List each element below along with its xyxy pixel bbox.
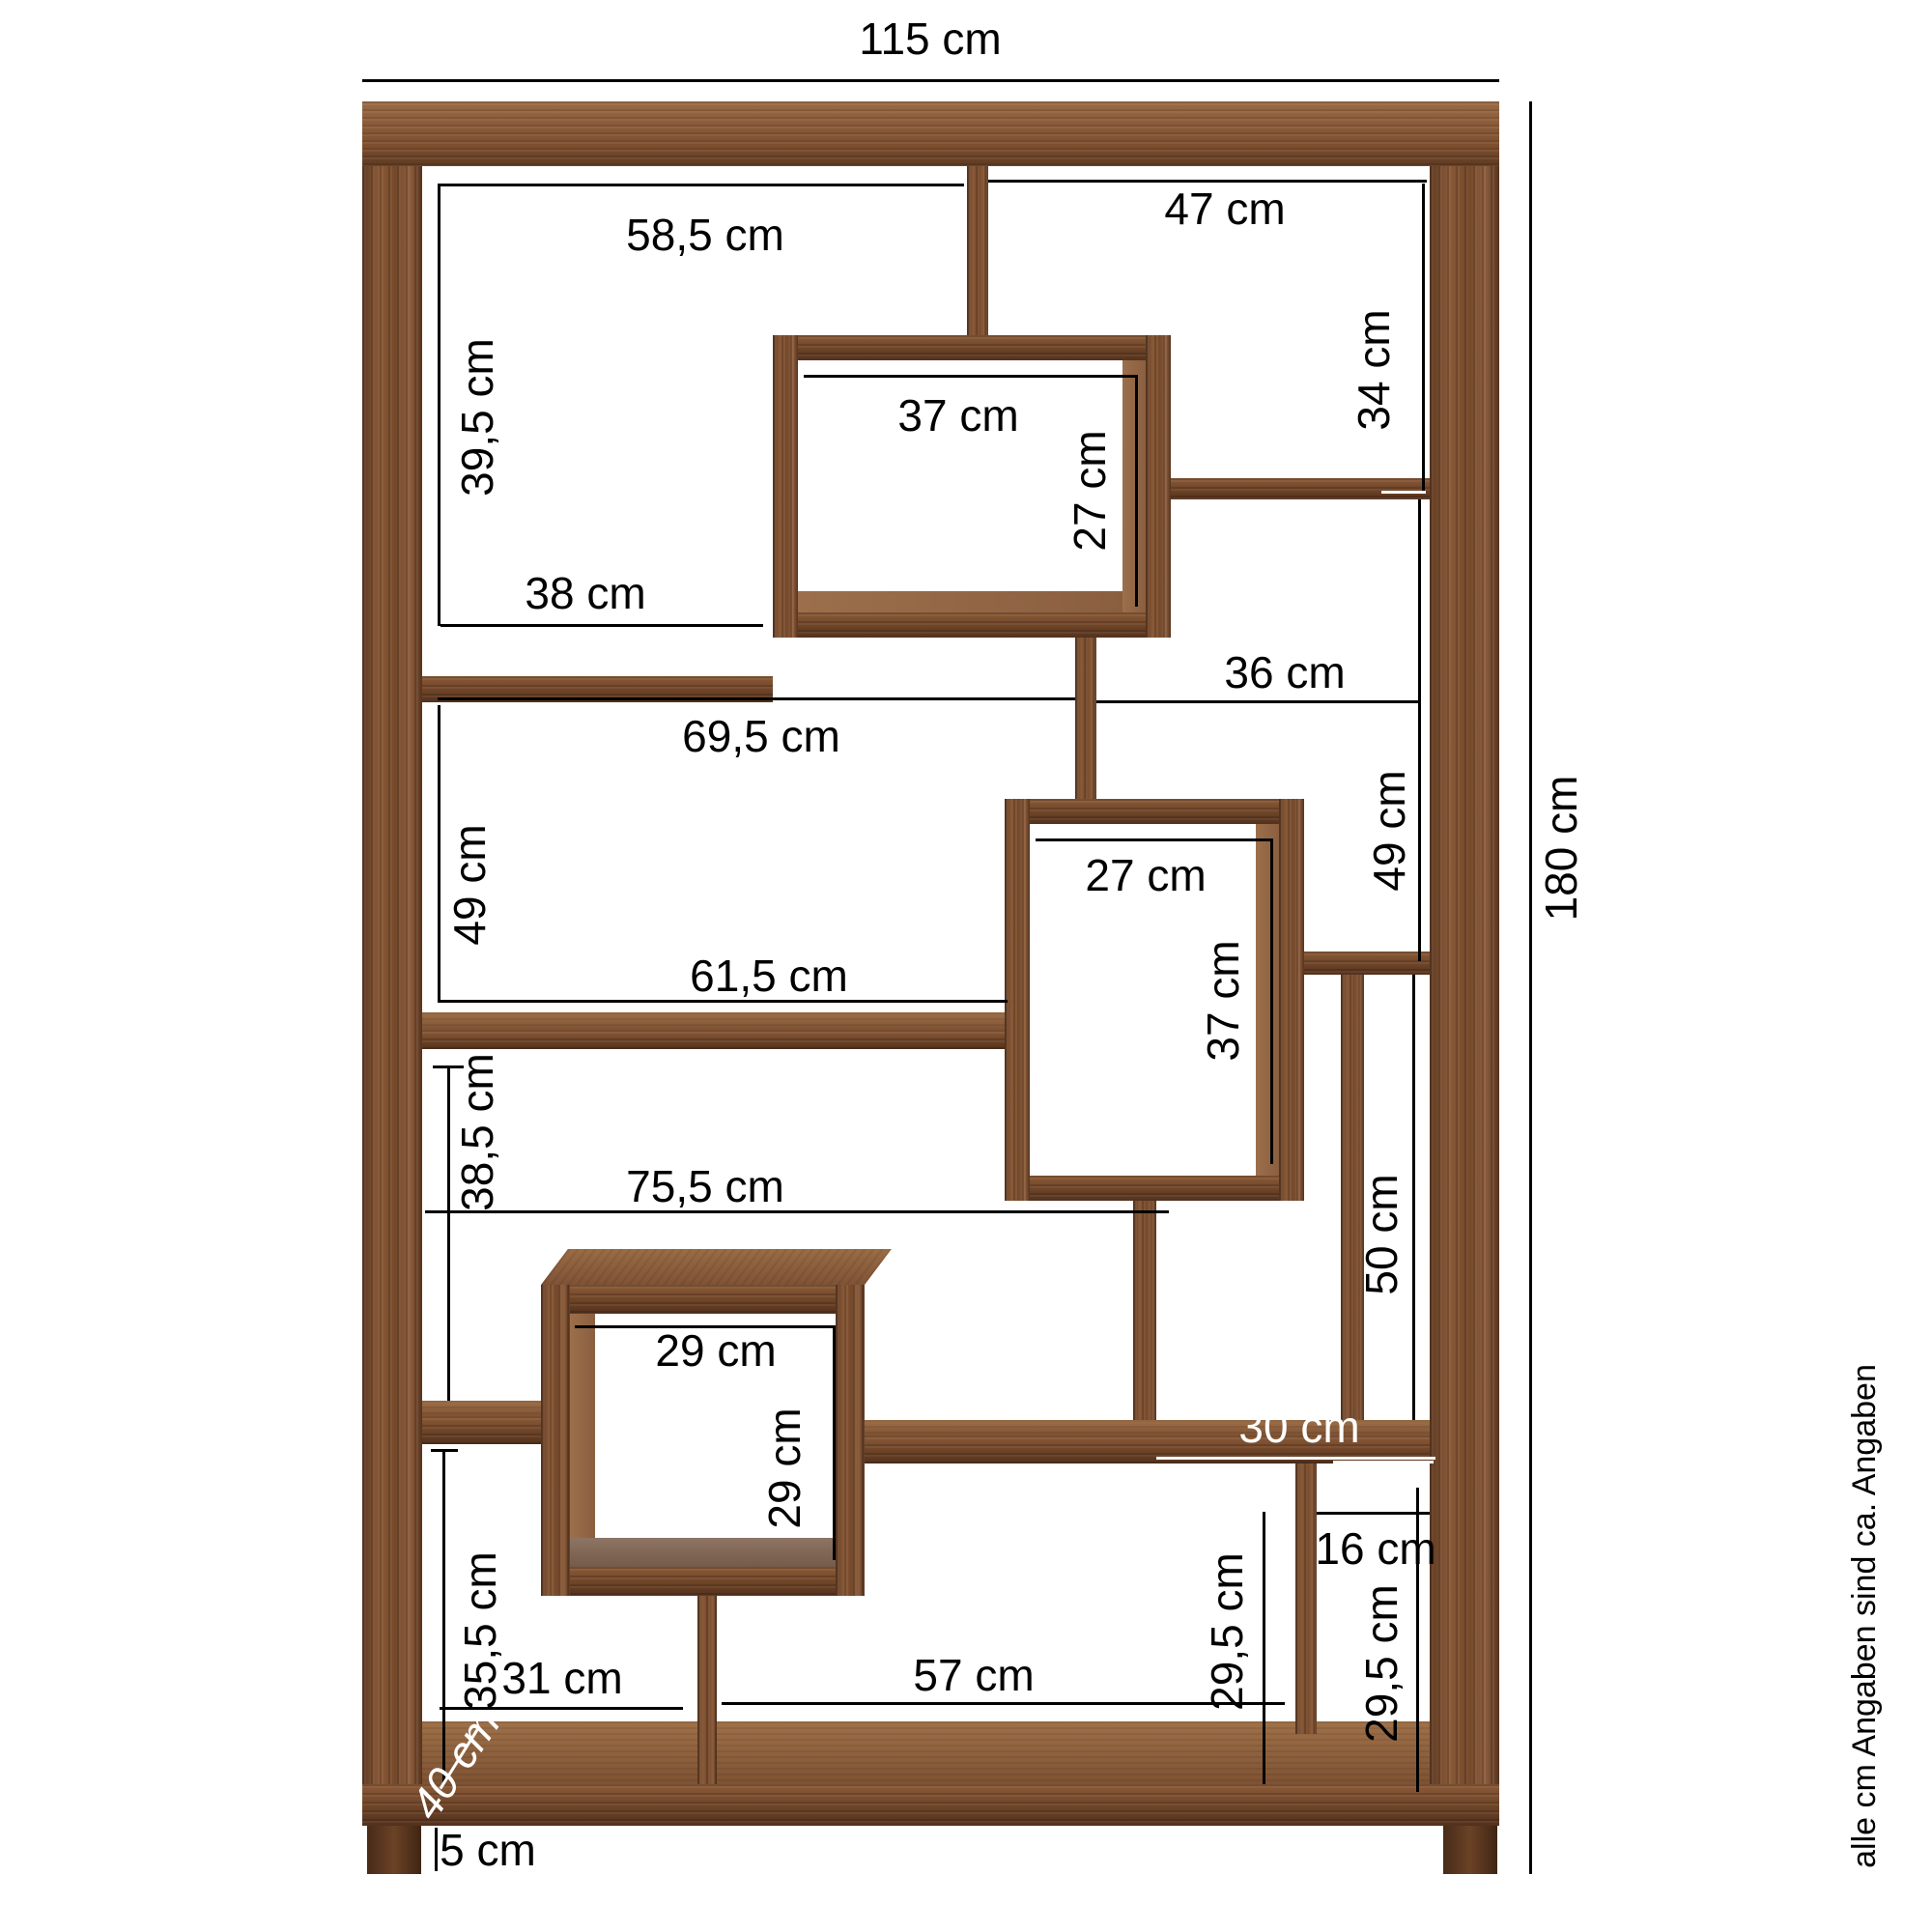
divider-bottom-right <box>1295 1463 1317 1734</box>
dim-line-395 <box>438 184 440 626</box>
dimension-label-box1-27: 27 cm <box>1067 430 1112 551</box>
dimension-label-615: 61,5 cm <box>690 953 848 998</box>
cube-top <box>541 1285 865 1314</box>
bottom-shelf-surface <box>422 1721 1430 1784</box>
dimension-label-385: 38,5 cm <box>455 1053 499 1211</box>
shelf-upper-right <box>1171 478 1430 499</box>
dimension-label-755: 75,5 cm <box>626 1164 784 1208</box>
box1-top <box>773 335 1171 360</box>
frame-left-post <box>362 101 422 1826</box>
box2-bottom <box>1005 1176 1304 1201</box>
dim-line-115 <box>362 79 1499 82</box>
shelf-mid-left-edge <box>422 1030 1005 1049</box>
stub-box2-shelf <box>1133 1201 1156 1420</box>
frame-right-post <box>1430 101 1499 1826</box>
dimension-label-31: 31 cm <box>501 1656 622 1700</box>
dimension-label-height-180: 180 cm <box>1539 776 1583 922</box>
dim-line-585 <box>438 184 964 186</box>
dim-line-30 <box>1156 1457 1435 1460</box>
cube-left <box>541 1285 570 1596</box>
shelf-low-left-edge <box>422 1416 541 1444</box>
cube-right <box>836 1285 865 1596</box>
dim-line-36 <box>1096 700 1418 703</box>
box1-inner-bottom <box>798 591 1122 612</box>
dimension-label-585: 58,5 cm <box>626 213 784 257</box>
divider-top <box>967 166 988 336</box>
shelf-mid-left-surface <box>422 1012 1005 1030</box>
dim-line-755 <box>425 1210 1169 1213</box>
box1-inner-right <box>1122 360 1146 612</box>
dim-tick-50 <box>1333 1461 1434 1463</box>
box2-right <box>1279 799 1304 1201</box>
box2-left <box>1005 799 1030 1201</box>
dimension-label-50: 50 cm <box>1359 1174 1404 1294</box>
box1-left <box>773 335 798 638</box>
box2-inner-right <box>1256 824 1279 1176</box>
dimension-label-395: 39,5 cm <box>455 338 499 497</box>
dimension-label-box1-37: 37 cm <box>897 393 1018 438</box>
dim-line-57 <box>722 1702 1285 1705</box>
dimension-label-5: 5 cm <box>440 1828 536 1872</box>
box1-right <box>1146 335 1171 638</box>
dimension-label-36: 36 cm <box>1224 650 1345 695</box>
dimension-label-16: 16 cm <box>1315 1526 1435 1571</box>
dimension-label-295a: 29,5 cm <box>1205 1552 1249 1711</box>
dim-line-34 <box>1422 184 1425 493</box>
dimension-label-30: 30 cm <box>1238 1405 1359 1449</box>
dimension-label-295b: 29,5 cm <box>1359 1584 1404 1743</box>
cube-inner-bottom <box>570 1538 836 1567</box>
frame-top-rail <box>362 101 1499 166</box>
shelf-mid-right <box>1304 952 1430 975</box>
dim-line-47 <box>988 180 1427 183</box>
shelf-low-left-surface <box>422 1401 541 1416</box>
dim-line-box1-37 <box>804 375 1138 378</box>
dim-line-180 <box>1529 101 1532 1874</box>
dim-line-385 <box>447 1065 450 1401</box>
dimension-label-cube-29: 29 cm <box>655 1328 776 1373</box>
foot-right <box>1443 1826 1497 1874</box>
dimension-label-49-right: 49 cm <box>1367 770 1411 891</box>
dimension-label-57: 57 cm <box>913 1653 1034 1697</box>
dimension-label-box2-27: 27 cm <box>1085 853 1206 897</box>
dimension-diagram: 115 cm 180 cm 58,5 cm 47 cm 39,5 cm 34 c… <box>0 0 1932 1932</box>
dim-line-295a <box>1263 1512 1265 1784</box>
dim-line-49-right <box>1418 499 1421 961</box>
stub-cube-floor <box>697 1596 717 1784</box>
dim-line-box2-37 <box>1270 838 1273 1164</box>
dim-tick-355 <box>431 1449 458 1452</box>
dimension-label-width-115: 115 cm <box>859 16 1001 61</box>
frame-bottom-rail <box>362 1784 1499 1826</box>
dimension-label-cube-29v: 29 cm <box>762 1407 807 1528</box>
dim-line-50 <box>1412 975 1415 1420</box>
dimension-label-38: 38 cm <box>525 571 645 615</box>
dim-line-16 <box>1317 1512 1430 1515</box>
box1-bottom <box>773 612 1171 638</box>
dim-line-cube-29v <box>833 1325 836 1560</box>
dimension-label-34: 34 cm <box>1351 309 1396 430</box>
box2-top <box>1005 799 1304 824</box>
cube-top-face <box>541 1249 892 1285</box>
dimension-label-47: 47 cm <box>1164 186 1285 231</box>
dim-tick-34 <box>1381 491 1426 494</box>
dimension-label-49-left: 49 cm <box>447 824 492 945</box>
cube-inner-left <box>570 1314 595 1567</box>
dim-line-box1-27 <box>1135 375 1138 607</box>
dim-line-49-left <box>438 705 440 1000</box>
dim-line-5 <box>435 1828 438 1871</box>
footnote-approx-note: alle cm Angaben sind ca. Angaben <box>1848 1364 1881 1868</box>
stub-box1-box2 <box>1075 638 1096 800</box>
dimension-label-box2-37: 37 cm <box>1201 940 1245 1061</box>
cube-bottom <box>541 1567 865 1596</box>
dim-line-38 <box>440 624 763 627</box>
dimension-label-695: 69,5 cm <box>682 714 840 758</box>
dim-line-box2-27 <box>1036 838 1273 841</box>
foot-left <box>367 1826 421 1874</box>
dim-line-695 <box>438 697 1075 700</box>
dimension-label-355: 35,5 cm <box>458 1551 502 1710</box>
